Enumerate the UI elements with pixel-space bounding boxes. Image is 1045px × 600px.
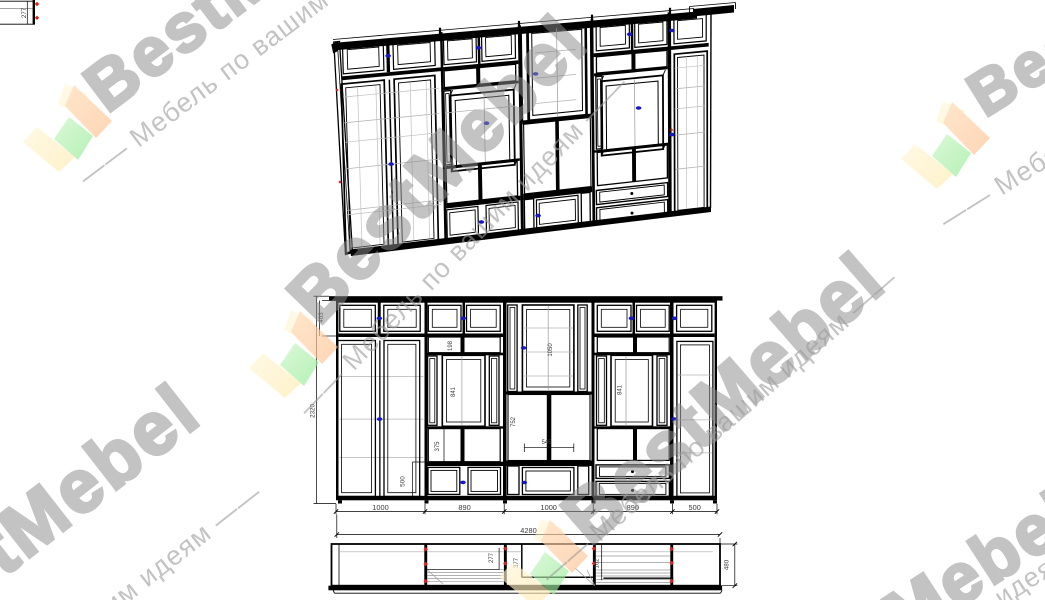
svg-text:1000: 1000 [372, 503, 388, 512]
svg-text:841: 841 [618, 384, 624, 395]
svg-text:545: 545 [541, 440, 552, 446]
svg-text:277: 277 [21, 7, 28, 18]
svg-text:841: 841 [451, 386, 457, 397]
svg-text:277: 277 [489, 552, 495, 563]
svg-text:480: 480 [724, 559, 731, 570]
svg-text:752: 752 [511, 416, 517, 427]
svg-text:1050: 1050 [548, 343, 554, 357]
svg-text:890: 890 [458, 503, 470, 512]
svg-text:500: 500 [689, 503, 701, 512]
svg-text:375: 375 [435, 441, 441, 452]
svg-text:198: 198 [448, 340, 454, 351]
svg-text:500: 500 [400, 476, 407, 487]
svg-text:4280: 4280 [520, 526, 536, 535]
